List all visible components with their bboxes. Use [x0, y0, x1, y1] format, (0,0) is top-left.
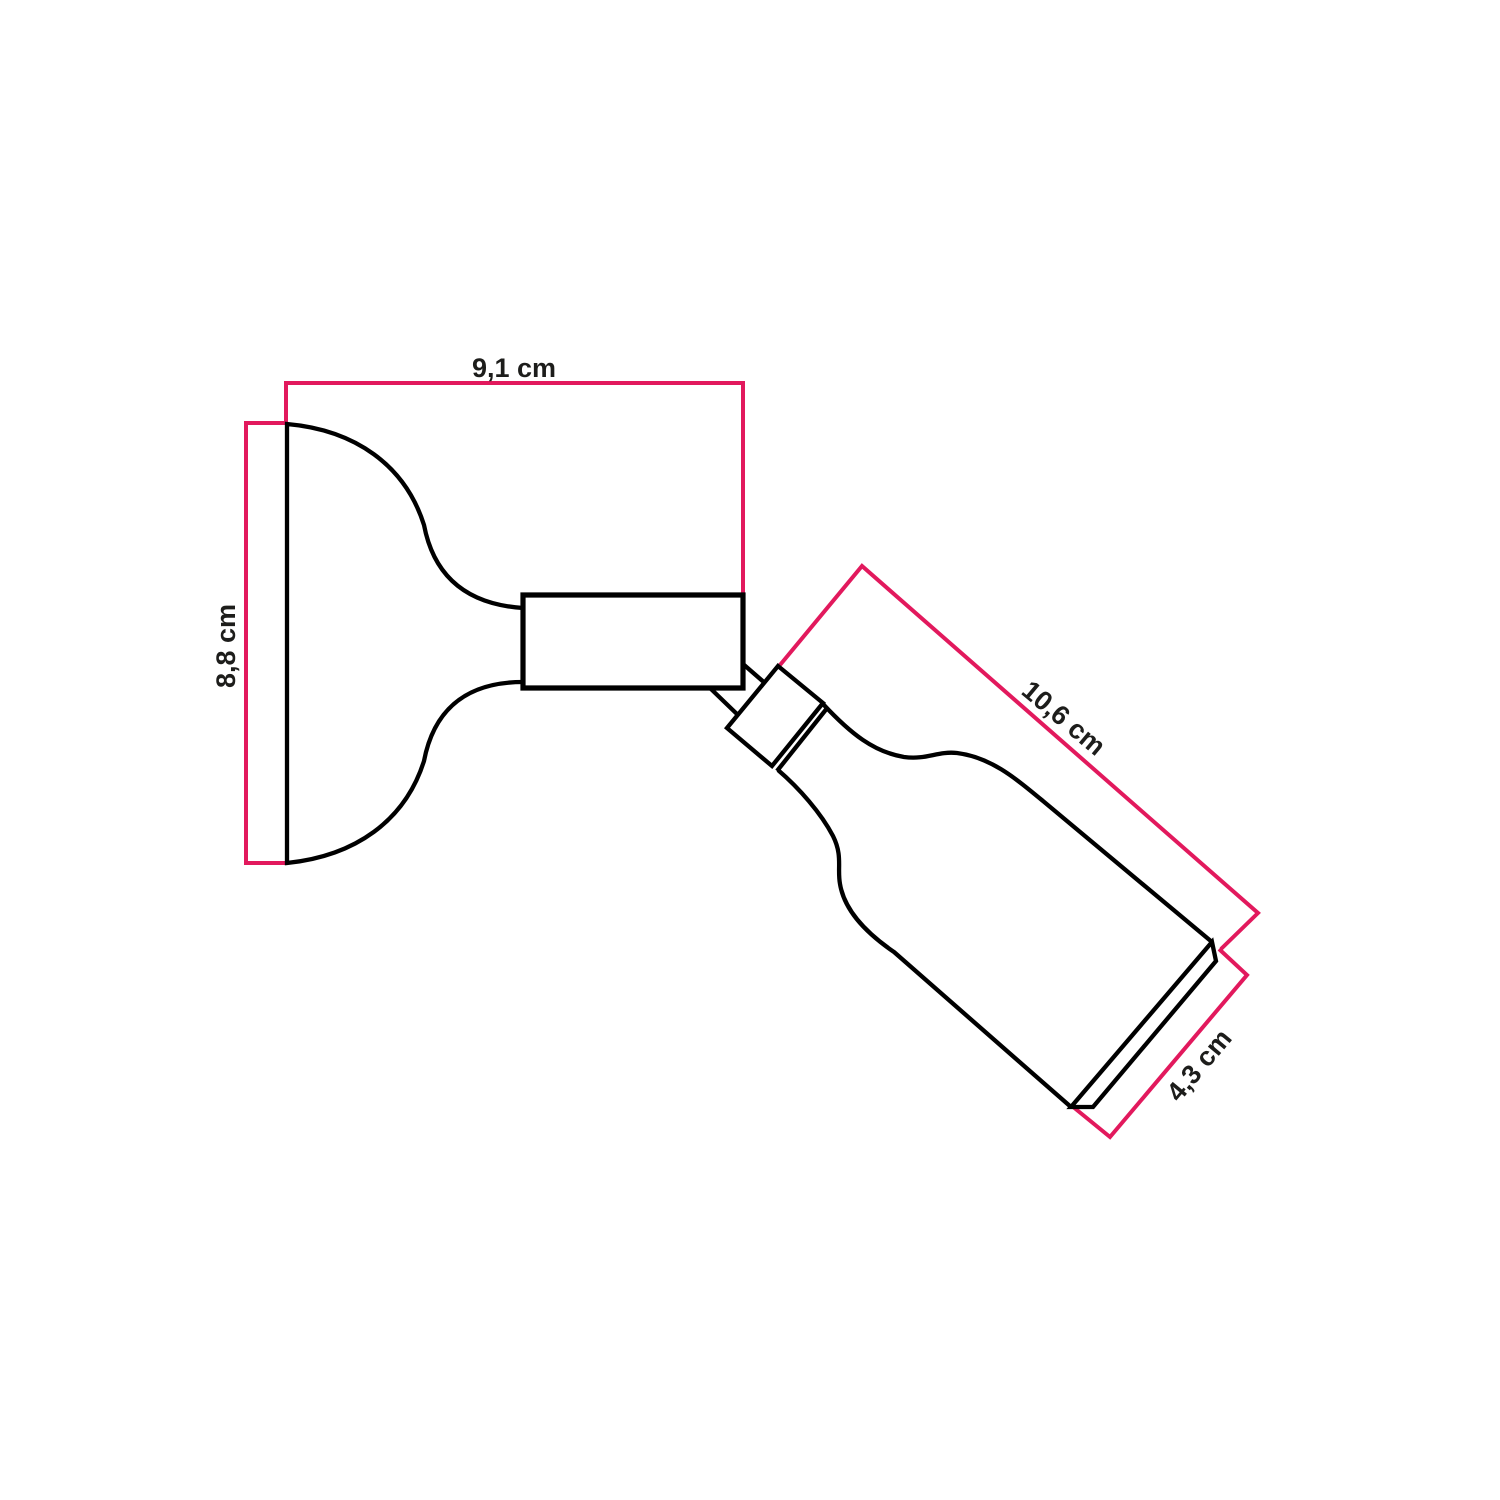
wall-lamp-dimension-drawing: 9,1 cm 8,8 cm 10,6 cm 4,3 cm — [0, 0, 1500, 1500]
dimension-label-plate-width: 9,1 cm — [472, 353, 556, 383]
dimension-label-plate-height: 8,8 cm — [211, 604, 241, 688]
socket-cylinder — [523, 595, 743, 688]
lamp-outline — [287, 424, 1216, 1107]
dimension-lines — [246, 383, 1258, 1137]
wall-plate-outline — [287, 424, 523, 863]
dimension-bracket-plate-width — [286, 383, 743, 593]
diagram-page: 9,1 cm 8,8 cm 10,6 cm 4,3 cm — [0, 0, 1500, 1500]
dimension-bracket-holder-length — [780, 566, 1258, 949]
hinge-connector-bottom — [711, 689, 739, 716]
dimension-label-holder-length: 10,6 cm — [1016, 675, 1111, 762]
dimension-labels: 9,1 cm 8,8 cm 10,6 cm 4,3 cm — [211, 353, 1238, 1107]
lamp-holder-bottom-edge — [778, 770, 1071, 1107]
dimension-bracket-plate-height — [246, 423, 287, 863]
hinge-connector-top — [743, 664, 766, 684]
